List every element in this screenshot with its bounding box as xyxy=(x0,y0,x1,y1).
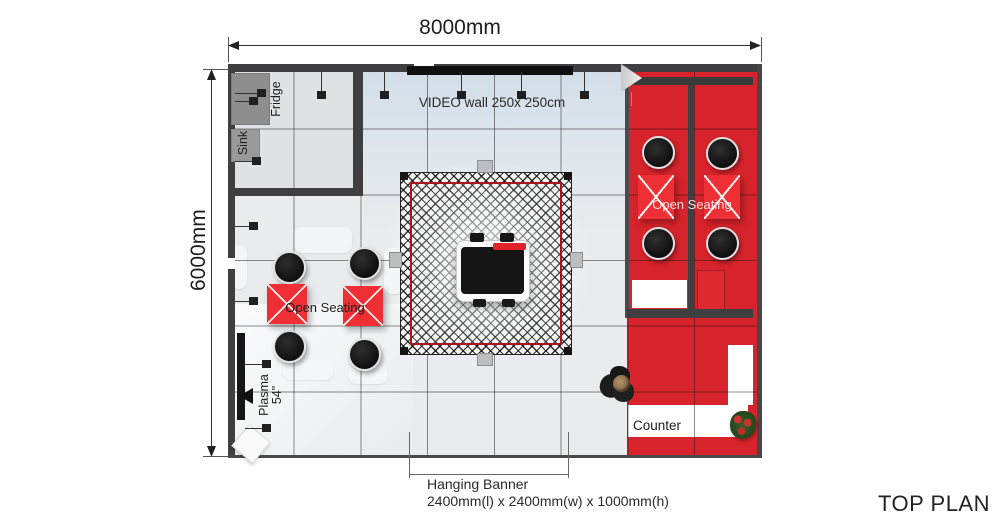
arrow-left-icon xyxy=(228,41,239,50)
person-head xyxy=(613,375,630,392)
light-marker xyxy=(380,91,389,99)
chair xyxy=(348,247,381,280)
light-marker xyxy=(252,157,261,165)
marker-stem xyxy=(245,428,262,429)
desk-top xyxy=(461,247,524,294)
kitchen-right-wall xyxy=(353,64,363,196)
open-seating-left-label: Open Seating xyxy=(265,300,385,314)
page-title: TOP PLAN xyxy=(850,491,990,517)
dimension-tick xyxy=(761,37,762,62)
chair xyxy=(642,136,675,169)
bottom-wall xyxy=(228,455,762,458)
height-dimension-label: 6000mm xyxy=(187,211,211,291)
marker-stem xyxy=(584,72,585,91)
hanging-banner-title: Hanging Banner xyxy=(427,476,647,492)
marker-stem xyxy=(235,226,249,227)
seating-right-room-top-wall xyxy=(631,77,753,85)
truss-connector xyxy=(477,353,493,366)
chair xyxy=(706,137,739,170)
sink-label: Sink xyxy=(236,113,250,173)
marker-stem xyxy=(521,72,522,91)
plasma-label-line2: 54" xyxy=(271,363,284,427)
light-marker xyxy=(249,222,258,230)
hanging-banner-size: 2400mm(l) x 2400mm(w) x 1000mm(h) xyxy=(427,493,727,510)
floor-plan: VIDEO wall 250x 250cm Fridge Sink xyxy=(228,64,762,458)
marker-stem xyxy=(461,72,462,91)
marker-stem xyxy=(384,72,385,91)
plasma-label: Plasma 54" xyxy=(258,363,286,427)
dimension-tick xyxy=(228,37,229,62)
desk-accent-strip xyxy=(493,243,526,250)
desk-stool xyxy=(473,299,486,307)
counter-label: Counter xyxy=(633,418,723,433)
light-marker xyxy=(257,89,266,97)
chair xyxy=(706,227,739,260)
light-marker xyxy=(317,91,326,99)
chair xyxy=(273,330,306,363)
reception-desk xyxy=(456,240,530,302)
marker-stem xyxy=(235,101,249,102)
chair xyxy=(273,251,306,284)
video-wall-label: VIDEO wall 250x 250cm xyxy=(392,95,592,111)
left-wall-opening xyxy=(228,258,235,269)
video-wall xyxy=(407,66,573,75)
truss-connector xyxy=(477,160,493,173)
banner-extension-line xyxy=(568,432,569,478)
open-seating-right-label: Open Seating xyxy=(632,197,752,211)
dimension-tick xyxy=(203,69,229,70)
direction-arrow-stem xyxy=(631,92,632,106)
marker-stem xyxy=(235,93,257,94)
marker-stem xyxy=(235,301,249,302)
top-wall-left-segment xyxy=(228,64,414,72)
arrow-up-icon xyxy=(207,69,216,80)
desk-stool xyxy=(500,233,514,242)
left-wall-lower xyxy=(228,269,235,455)
desk-stool xyxy=(502,299,515,307)
desk-stool xyxy=(470,233,484,242)
light-marker xyxy=(249,97,258,105)
fridge-label: Fridge xyxy=(269,69,283,129)
truss-connector xyxy=(570,252,583,268)
seating-right-room-left-wall xyxy=(625,66,629,318)
dimension-tick xyxy=(203,456,229,457)
width-dimension-line xyxy=(233,45,750,46)
chair xyxy=(348,338,381,371)
truss-corner xyxy=(564,172,572,180)
marker-stem xyxy=(321,72,322,91)
truss-corner xyxy=(564,347,572,355)
chair xyxy=(642,227,675,260)
truss-corner xyxy=(400,172,408,180)
height-dimension-line xyxy=(211,74,212,452)
banner-extension-line xyxy=(409,432,410,478)
person xyxy=(600,366,636,406)
truss-corner xyxy=(400,347,408,355)
kitchen-bottom-wall xyxy=(228,188,363,196)
top-plan-drawing: VIDEO wall 250x 250cm Fridge Sink xyxy=(0,0,1000,527)
banner-bracket-line xyxy=(409,474,569,475)
truss-connector xyxy=(389,252,402,268)
arrow-right-icon xyxy=(750,41,761,50)
right-wall xyxy=(757,64,762,455)
light-marker xyxy=(249,297,258,305)
seating-right-room-bottom-wall xyxy=(627,309,753,318)
plasma-screen xyxy=(237,333,245,420)
width-dimension-label: 8000mm xyxy=(370,16,550,40)
